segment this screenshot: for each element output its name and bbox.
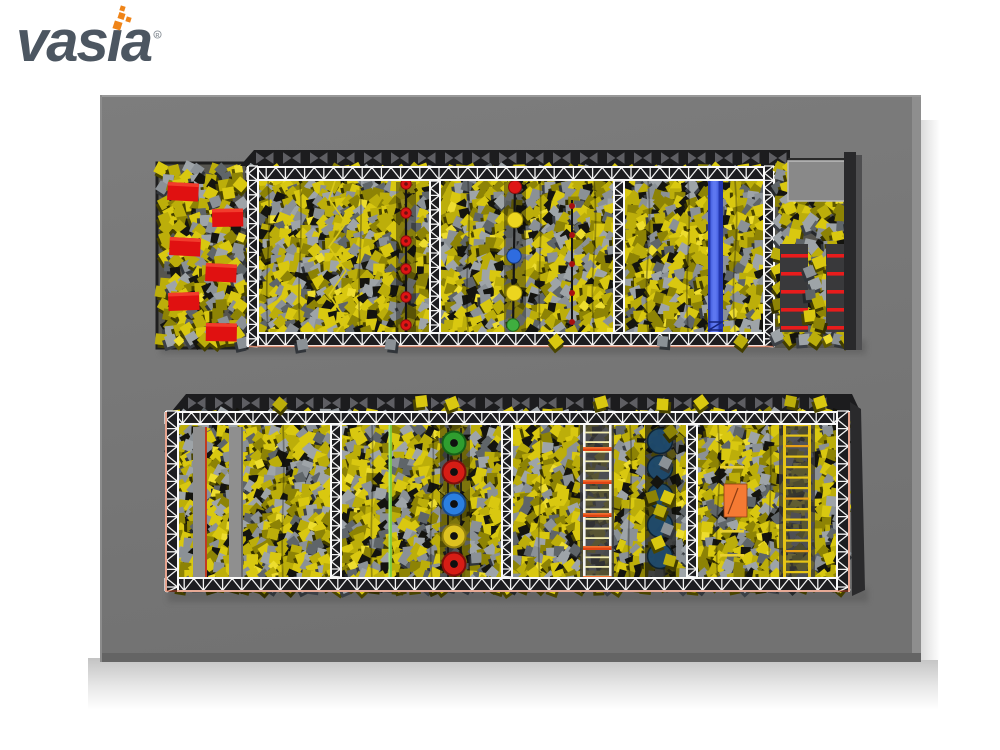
svg-text:R: R: [156, 33, 160, 39]
svg-text:vasıa: vasıa: [16, 9, 152, 74]
